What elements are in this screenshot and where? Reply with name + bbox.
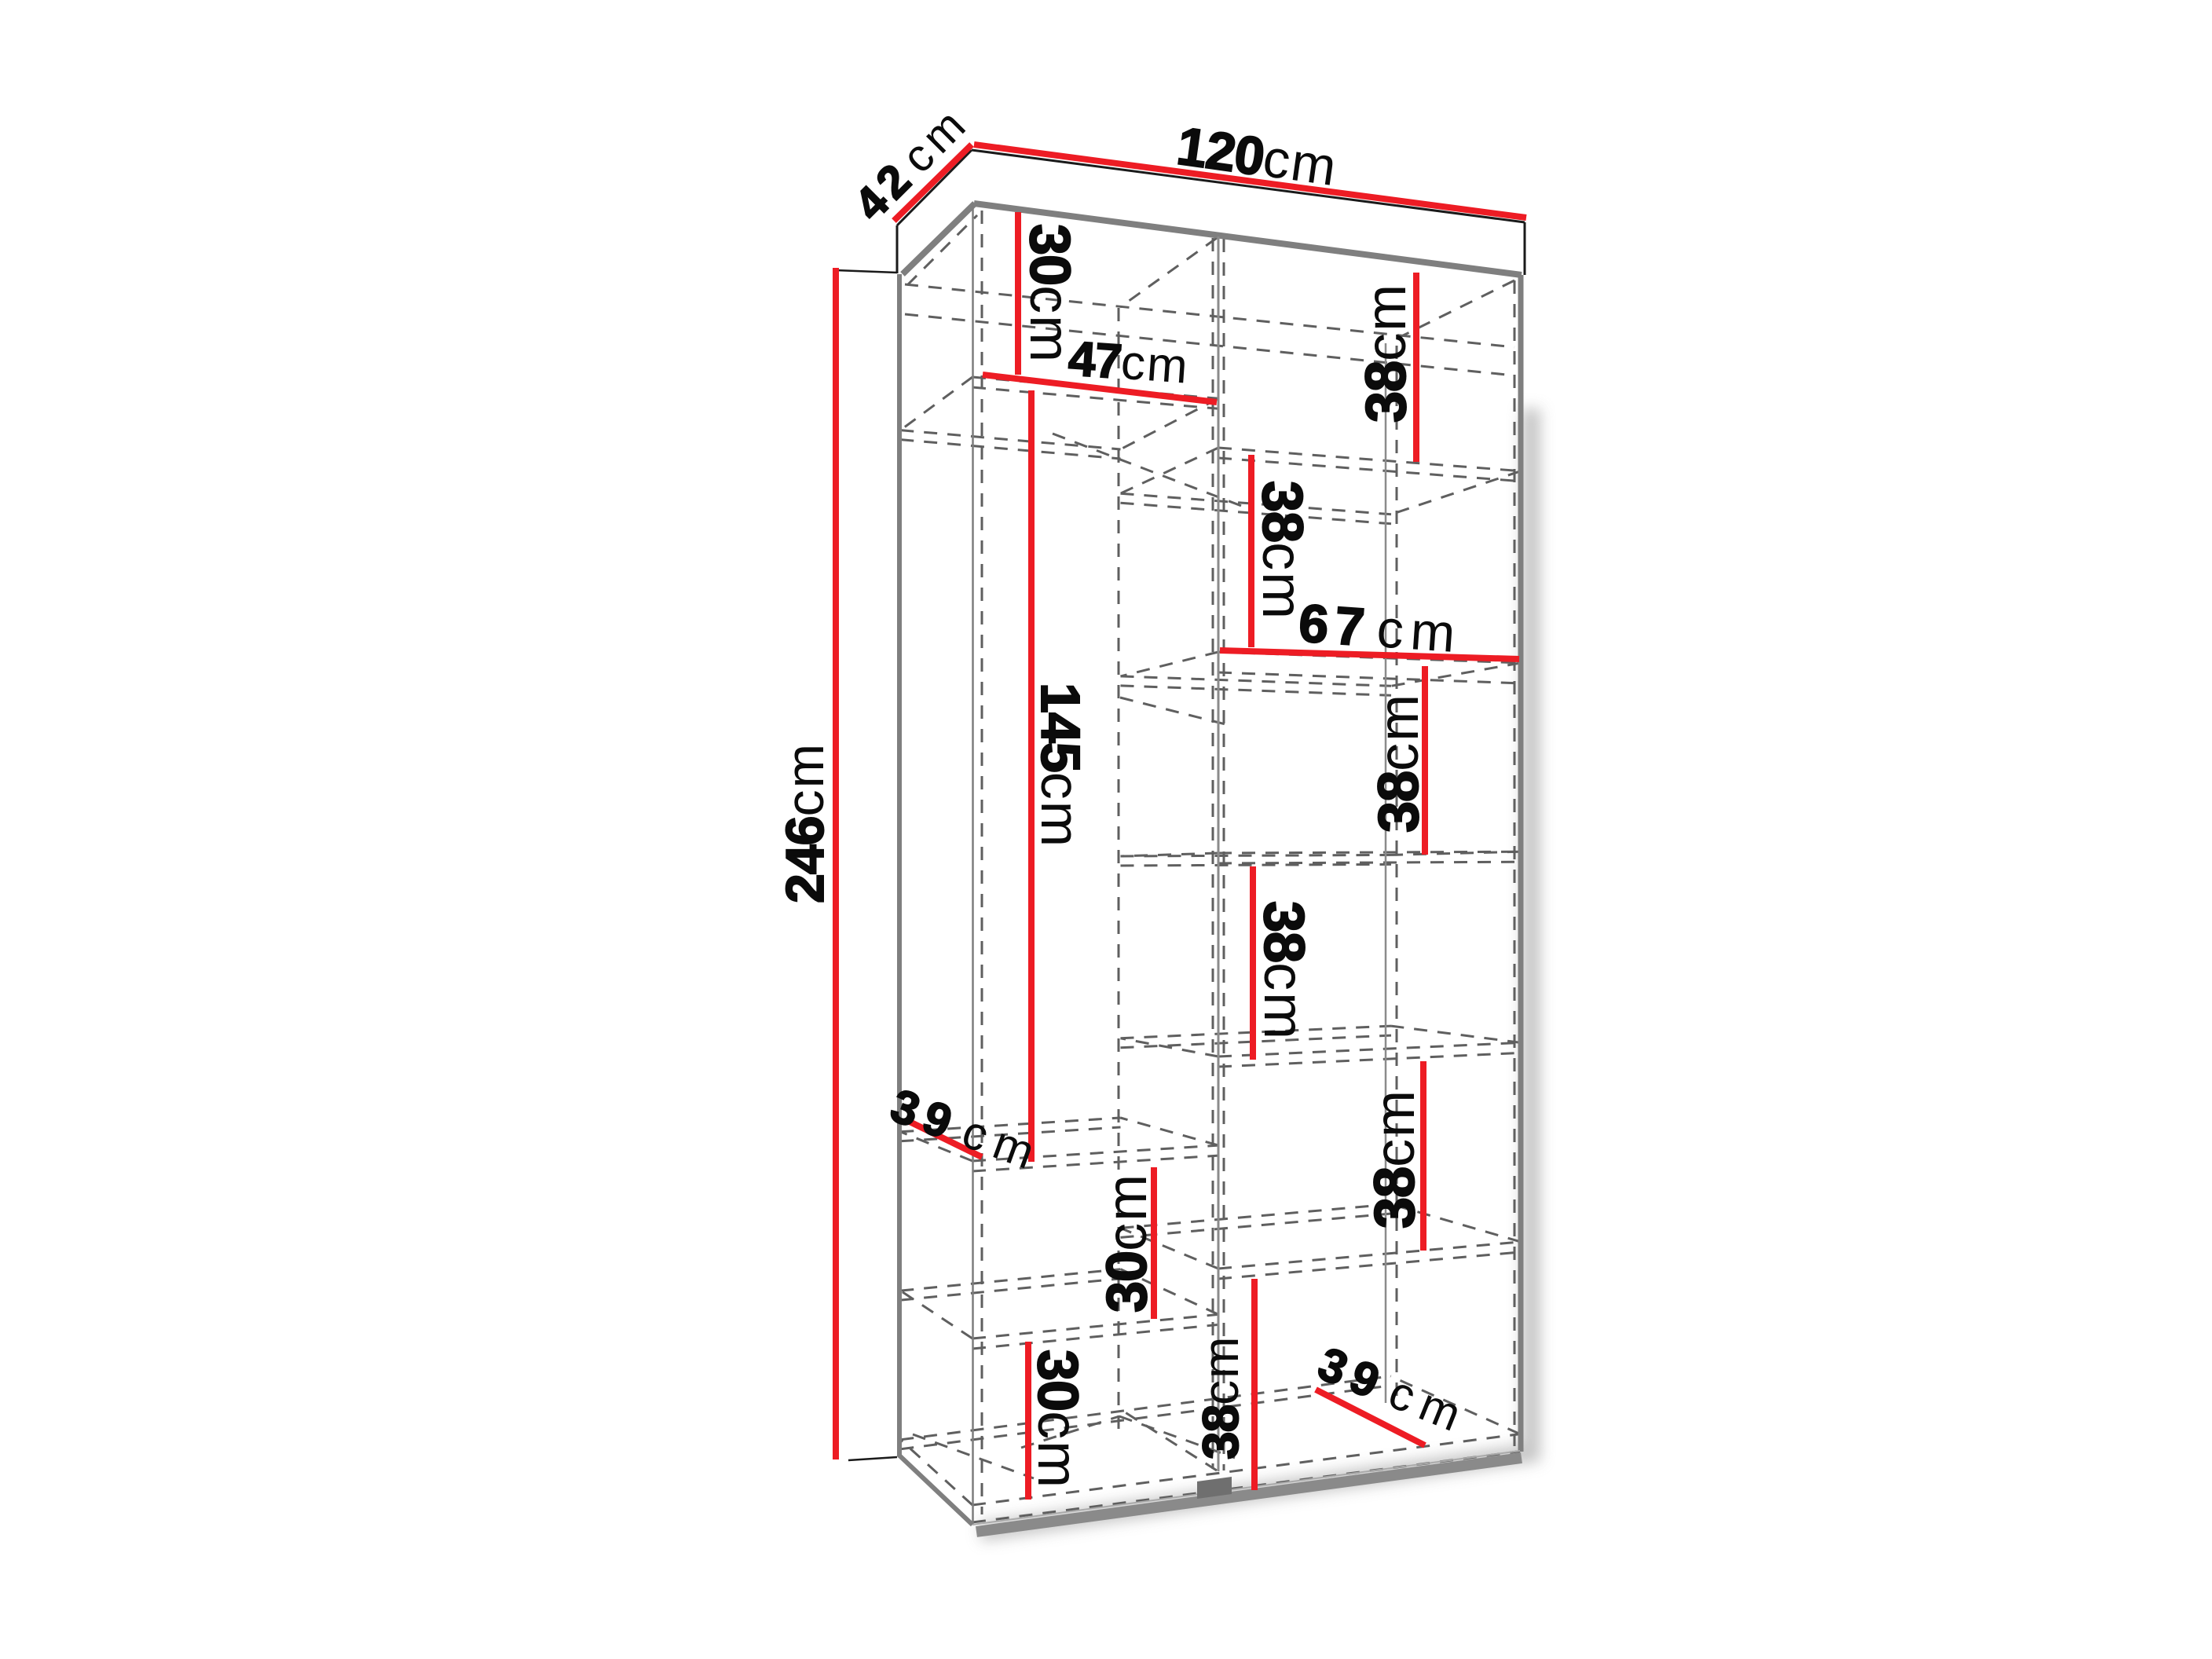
svg-text:38cm: 38cm — [1252, 901, 1315, 1041]
svg-text:47cm: 47cm — [1067, 331, 1191, 394]
svg-text:246cm: 246cm — [775, 742, 835, 903]
svg-text:38cm: 38cm — [1192, 1335, 1249, 1460]
svg-text:30cm: 30cm — [1096, 1173, 1159, 1313]
svg-text:30cm: 30cm — [1026, 1350, 1089, 1489]
svg-text:38cm: 38cm — [1364, 1089, 1426, 1229]
svg-text:38cm: 38cm — [1368, 693, 1430, 833]
svg-text:145cm: 145cm — [1030, 683, 1091, 848]
svg-text:38cm: 38cm — [1355, 283, 1418, 423]
svg-text:67cm: 67cm — [1297, 593, 1464, 664]
